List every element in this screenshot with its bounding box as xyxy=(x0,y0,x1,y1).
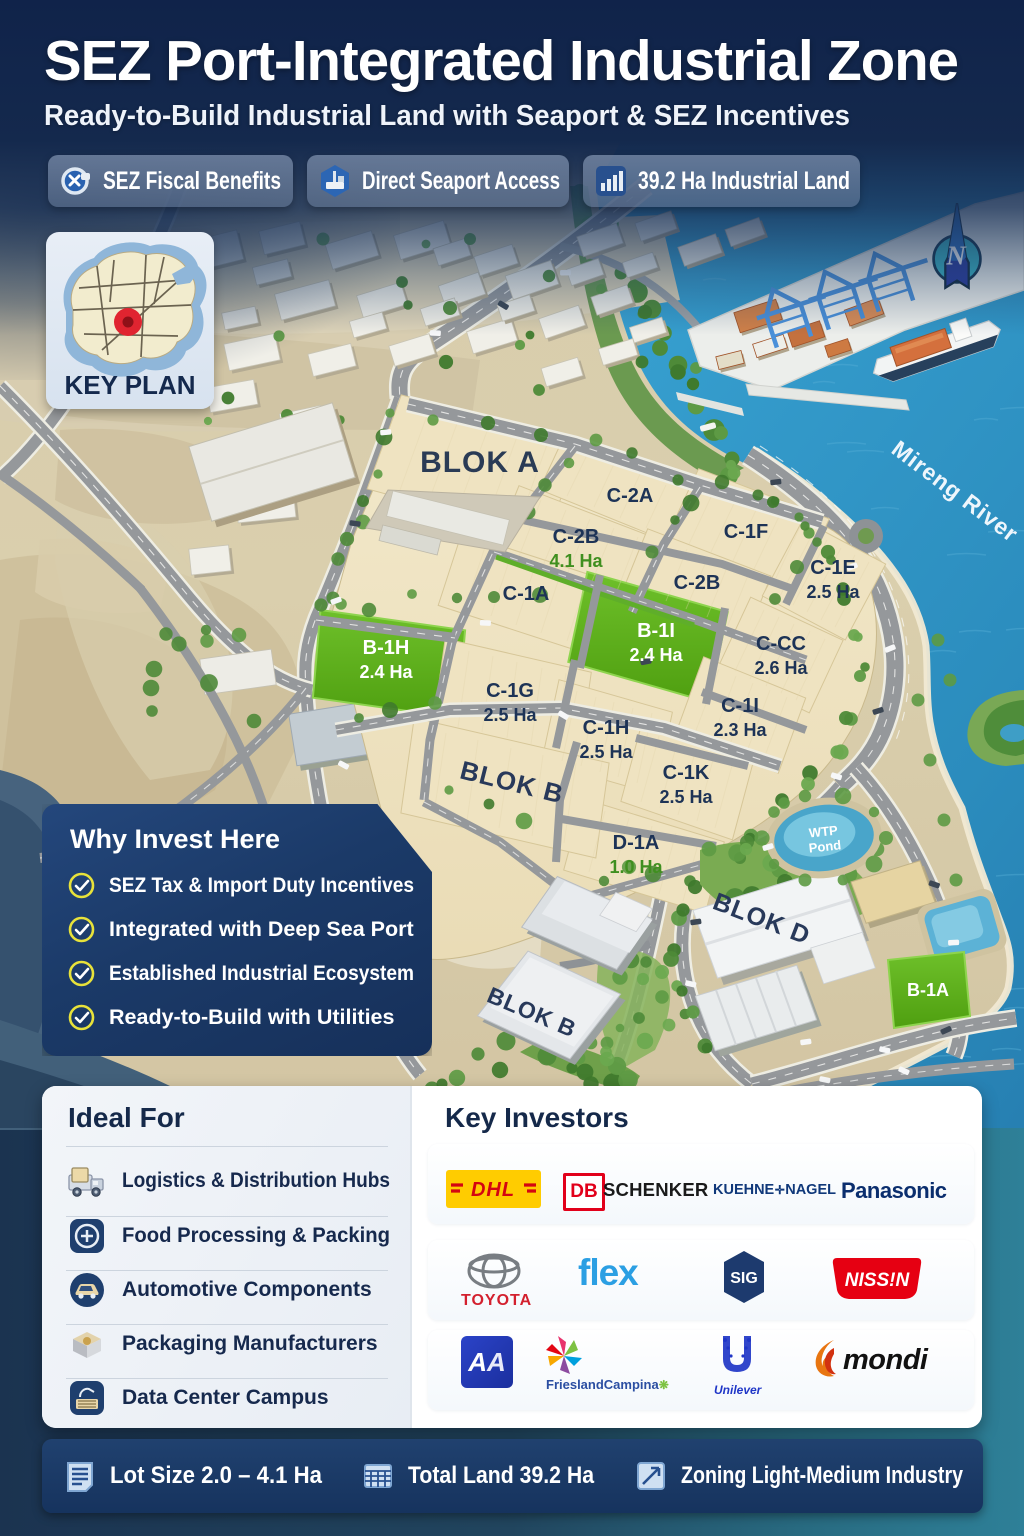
svg-text:DHL: DHL xyxy=(471,1179,515,1201)
svg-text:C-1H: C-1H xyxy=(583,717,630,739)
svg-text:2.5 Ha: 2.5 Ha xyxy=(483,705,537,725)
svg-text:C-2B: C-2B xyxy=(674,572,721,594)
svg-text:2.4 Ha: 2.4 Ha xyxy=(629,645,683,665)
svg-text:C-1A: C-1A xyxy=(503,583,550,605)
svg-text:D-1A: D-1A xyxy=(613,832,660,854)
svg-text:C-1I: C-1I xyxy=(721,695,759,717)
svg-text:C-1K: C-1K xyxy=(663,762,710,784)
svg-text:2.6 Ha: 2.6 Ha xyxy=(754,658,808,678)
svg-text:C-1G: C-1G xyxy=(486,680,534,702)
svg-text:NISS!N: NISS!N xyxy=(845,1270,911,1291)
svg-text:4.1 Ha: 4.1 Ha xyxy=(549,551,603,571)
svg-text:B-1H: B-1H xyxy=(363,637,410,659)
svg-text:2.5 Ha: 2.5 Ha xyxy=(659,787,713,807)
svg-text:2.4 Ha: 2.4 Ha xyxy=(359,662,413,682)
svg-text:B-1A: B-1A xyxy=(907,980,949,1000)
svg-text:C-1F: C-1F xyxy=(724,521,768,543)
svg-text:C-1E: C-1E xyxy=(810,557,856,579)
svg-text:2.5 Ha: 2.5 Ha xyxy=(806,582,860,602)
svg-text:C-2A: C-2A xyxy=(607,485,654,507)
svg-text:C-2B: C-2B xyxy=(553,526,600,548)
svg-text:SIG: SIG xyxy=(730,1270,758,1287)
svg-text:B-1I: B-1I xyxy=(637,620,675,642)
svg-text:BLOK A: BLOK A xyxy=(420,446,540,479)
svg-text:2.3 Ha: 2.3 Ha xyxy=(713,720,767,740)
svg-text:1.0 Ha: 1.0 Ha xyxy=(609,857,663,877)
svg-text:2.5 Ha: 2.5 Ha xyxy=(579,742,633,762)
svg-text:C-CC: C-CC xyxy=(756,633,806,655)
